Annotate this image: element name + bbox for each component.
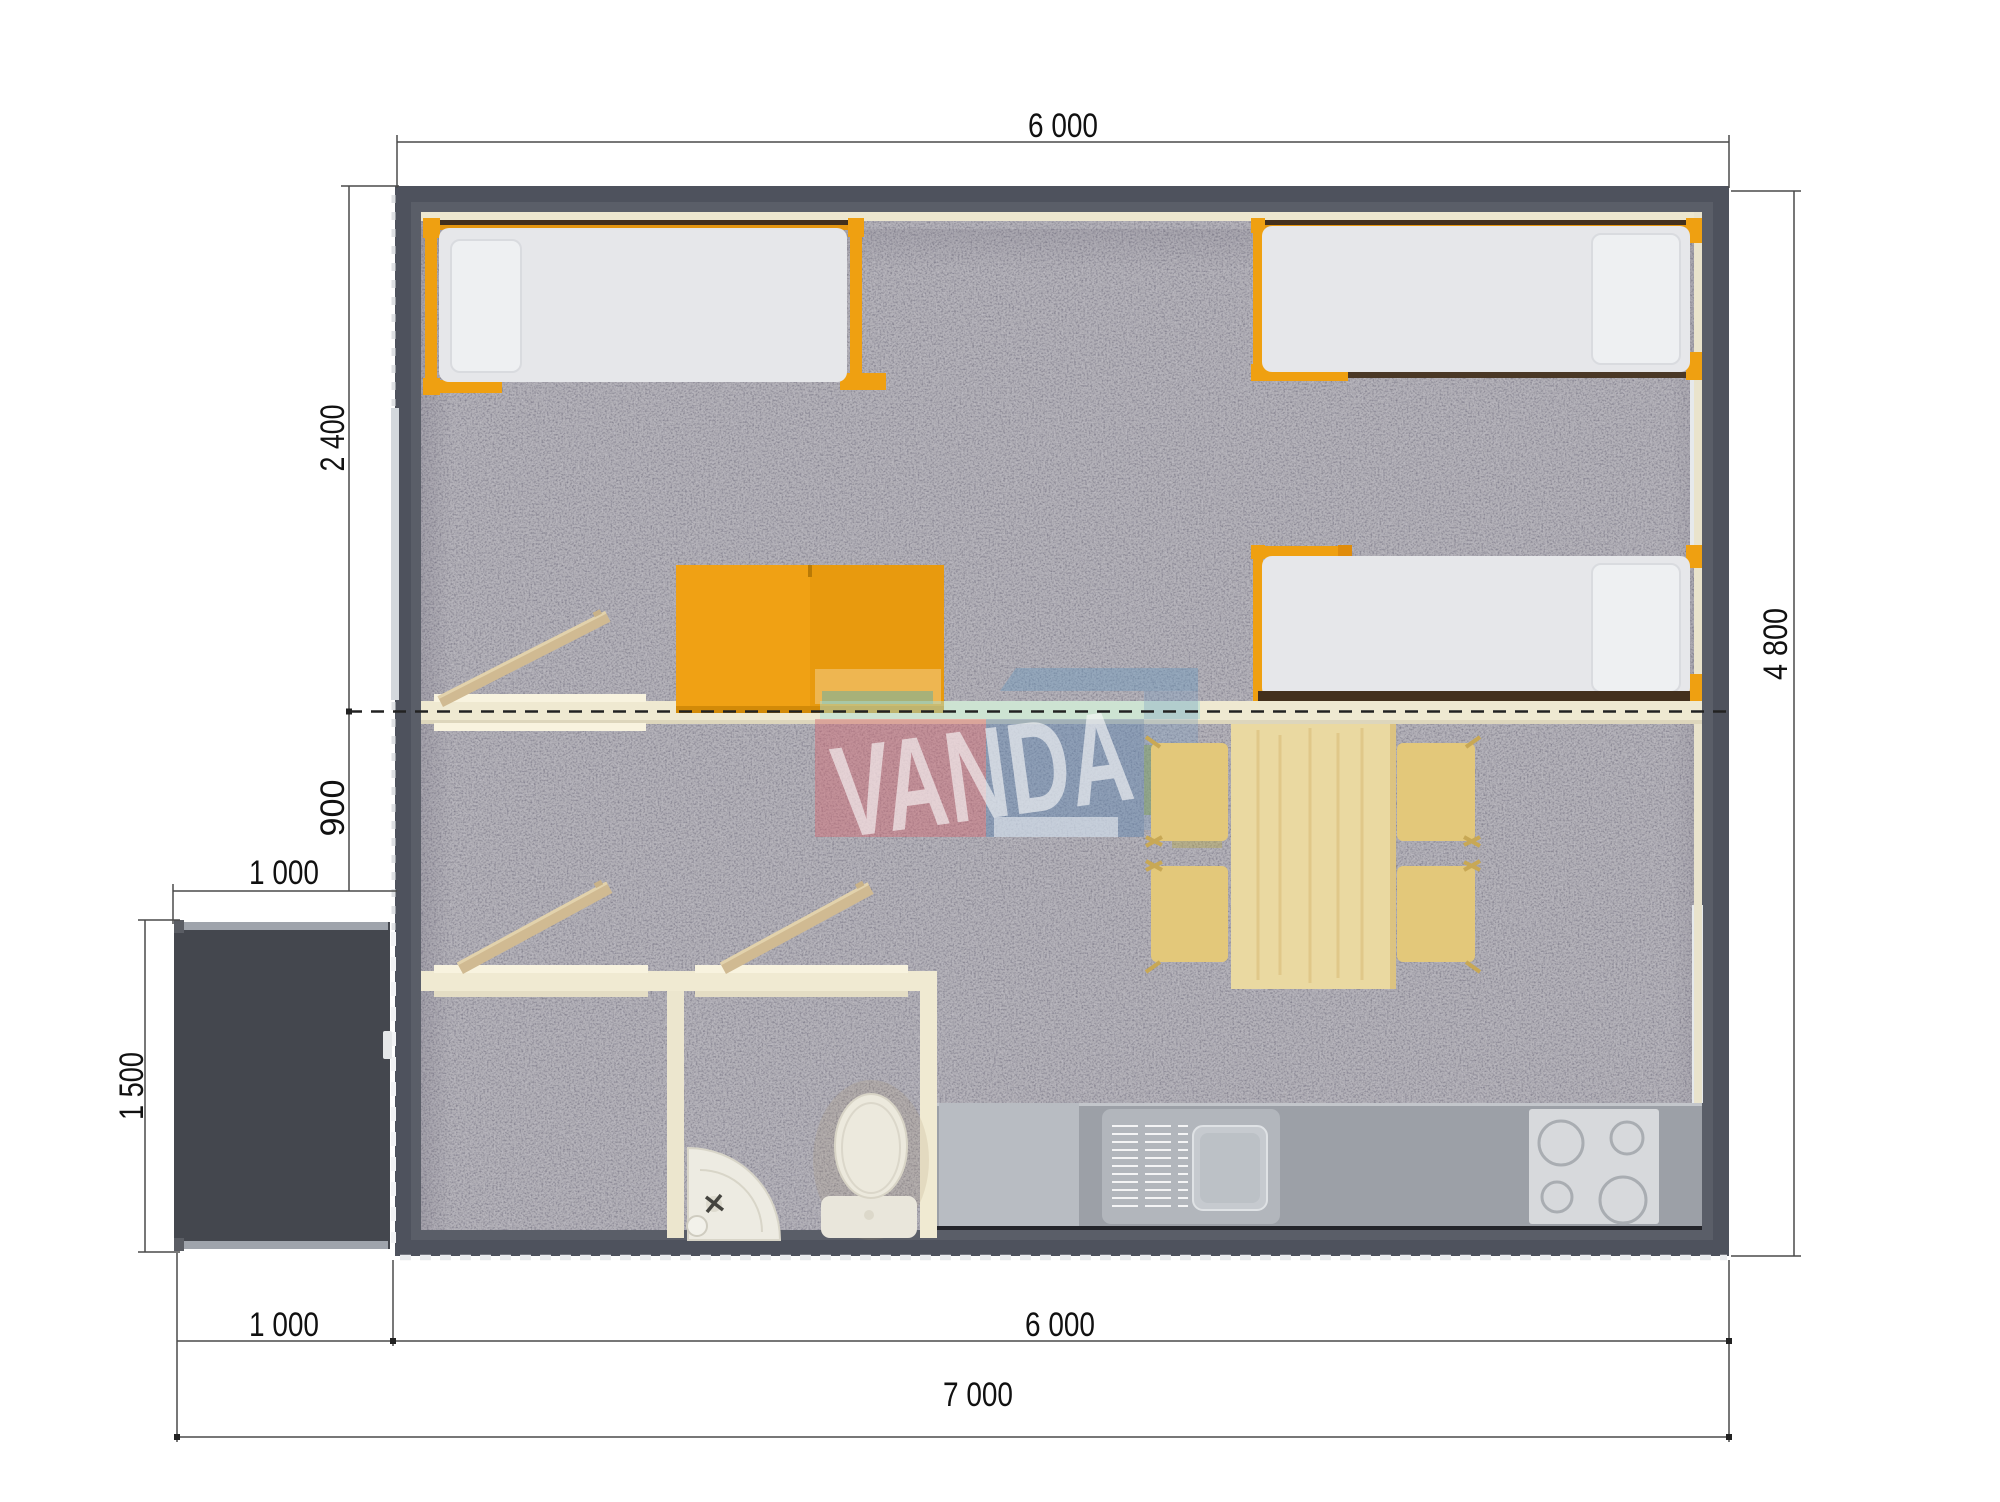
svg-text:2 400: 2 400 — [314, 405, 352, 472]
svg-text:1 000: 1 000 — [249, 854, 319, 892]
svg-text:4 800: 4 800 — [1757, 608, 1795, 680]
svg-text:6 000: 6 000 — [1028, 107, 1098, 145]
svg-text:7 000: 7 000 — [943, 1376, 1013, 1414]
svg-text:900: 900 — [314, 780, 352, 837]
svg-text:6 000: 6 000 — [1025, 1306, 1095, 1344]
svg-text:1 000: 1 000 — [249, 1306, 319, 1344]
svg-text:1 500: 1 500 — [113, 1052, 151, 1120]
